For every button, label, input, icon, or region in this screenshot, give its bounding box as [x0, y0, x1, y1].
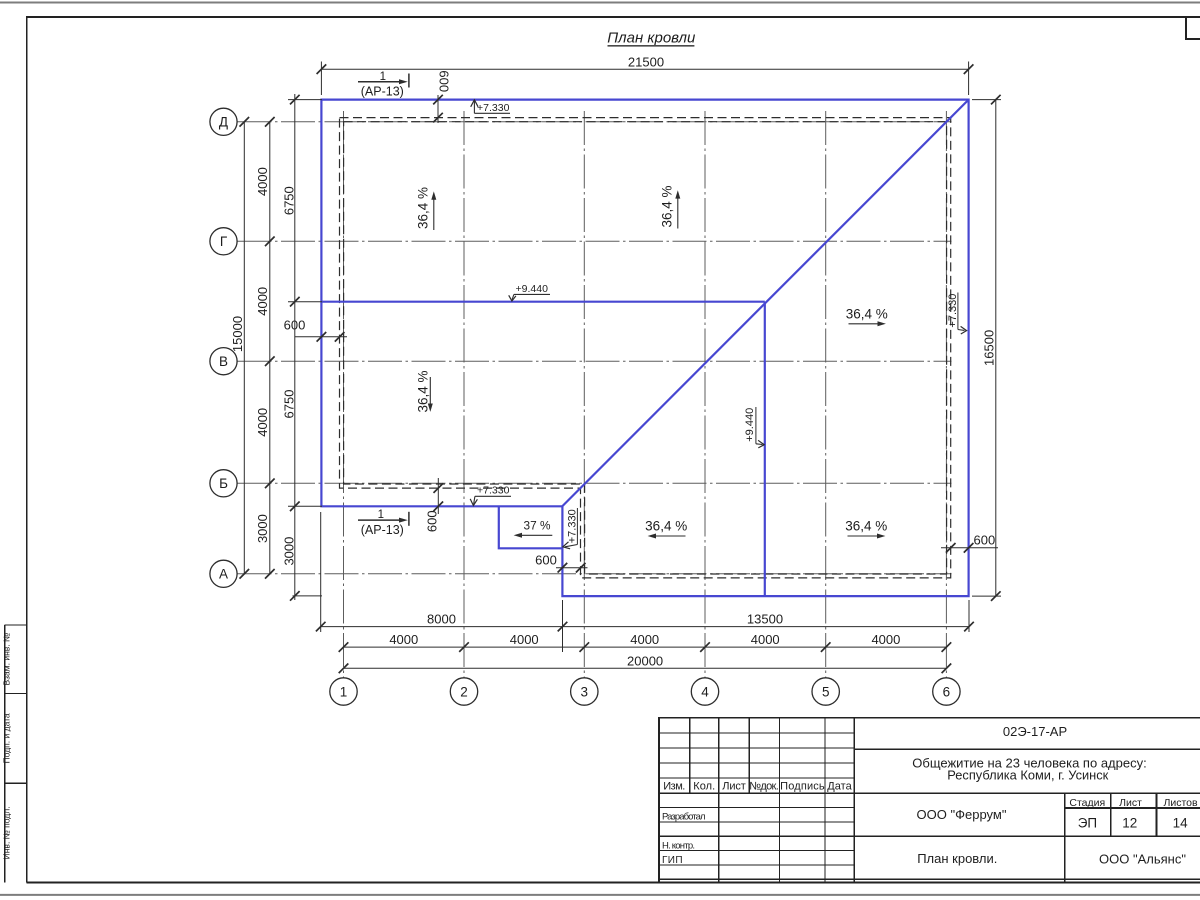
svg-text:В: В [219, 354, 228, 369]
svg-text:Подпись: Подпись [780, 781, 825, 793]
svg-text:Д: Д [219, 115, 228, 130]
svg-text:2: 2 [460, 684, 468, 699]
svg-text:Подп. и дата: Подп. и дата [2, 713, 12, 763]
svg-text:4000: 4000 [255, 287, 270, 316]
svg-text:Б: Б [219, 476, 228, 491]
svg-text:Инв. № подл.: Инв. № подл. [2, 806, 12, 859]
svg-text:Кол.: Кол. [693, 781, 715, 793]
svg-text:1: 1 [380, 71, 386, 83]
svg-text:Республика Коми, г. Усинск: Республика Коми, г. Усинск [947, 768, 1108, 783]
svg-text:1: 1 [340, 684, 348, 699]
svg-text:Стадия: Стадия [1069, 797, 1105, 809]
svg-text:Н. контр.: Н. контр. [662, 840, 695, 851]
svg-text:4000: 4000 [255, 408, 270, 437]
svg-text:13500: 13500 [747, 611, 783, 626]
svg-text:+7.330: +7.330 [477, 485, 510, 497]
svg-text:21500: 21500 [628, 55, 664, 70]
svg-text:4000: 4000 [871, 632, 900, 647]
svg-text:600: 600 [424, 510, 439, 532]
svg-text:02Э-17-АР: 02Э-17-АР [1003, 724, 1067, 739]
svg-text:4000: 4000 [751, 632, 780, 647]
svg-text:ГИП: ГИП [662, 855, 683, 866]
svg-text:16500: 16500 [982, 330, 997, 366]
svg-text:План кровли.: План кровли. [917, 851, 997, 866]
svg-text:20000: 20000 [627, 653, 663, 668]
svg-text:6: 6 [943, 684, 951, 699]
svg-text:ООО "Альянс": ООО "Альянс" [1099, 851, 1186, 866]
svg-text:6750: 6750 [282, 186, 297, 215]
svg-text:+9.440: +9.440 [744, 408, 756, 442]
svg-text:1: 1 [378, 509, 384, 521]
svg-text:План кровли: План кровли [607, 30, 696, 47]
svg-text:ЭП: ЭП [1078, 815, 1097, 830]
svg-text:12: 12 [1122, 815, 1137, 830]
svg-text:Изм.: Изм. [663, 781, 685, 793]
svg-text:600: 600 [437, 70, 452, 92]
svg-text:36,4 %: 36,4 % [846, 307, 888, 322]
svg-text:4000: 4000 [255, 167, 270, 196]
svg-text:№док.: №док. [749, 781, 779, 793]
svg-text:Г: Г [220, 234, 228, 249]
svg-text:3000: 3000 [282, 537, 297, 566]
svg-text:36,4 %: 36,4 % [645, 518, 687, 533]
svg-text:3: 3 [581, 684, 589, 699]
svg-text:4000: 4000 [389, 632, 418, 647]
svg-text:Взам. инв. №: Взам. инв. № [2, 633, 12, 686]
svg-text:36,4 %: 36,4 % [415, 370, 430, 412]
svg-text:Разработал: Разработал [662, 812, 706, 823]
svg-text:36,4 %: 36,4 % [415, 187, 430, 229]
svg-text:Лист: Лист [1119, 797, 1142, 809]
svg-text:Листов: Листов [1163, 797, 1198, 809]
svg-text:4000: 4000 [510, 632, 539, 647]
svg-text:4000: 4000 [630, 632, 659, 647]
svg-text:6750: 6750 [282, 390, 297, 419]
svg-text:(АР-13): (АР-13) [361, 523, 404, 537]
svg-text:(АР-13): (АР-13) [361, 85, 404, 99]
svg-text:14: 14 [1173, 815, 1189, 830]
svg-text:8000: 8000 [427, 611, 456, 626]
svg-text:37 %: 37 % [524, 518, 551, 532]
svg-text:+9.440: +9.440 [516, 283, 549, 295]
svg-text:36,4 %: 36,4 % [845, 518, 887, 533]
svg-text:5: 5 [822, 684, 830, 699]
svg-text:Лист: Лист [722, 781, 746, 793]
svg-text:3000: 3000 [255, 514, 270, 543]
svg-text:15000: 15000 [230, 316, 245, 352]
svg-text:600: 600 [974, 532, 996, 547]
svg-text:+7.330: +7.330 [477, 102, 510, 114]
svg-text:+7.330: +7.330 [566, 509, 578, 543]
svg-text:Дата: Дата [827, 781, 852, 793]
svg-text:+7.330: +7.330 [947, 294, 959, 328]
svg-text:ООО "Феррум": ООО "Феррум" [917, 807, 1007, 822]
svg-text:600: 600 [535, 553, 557, 568]
svg-text:4: 4 [701, 684, 709, 699]
svg-text:36,4 %: 36,4 % [659, 185, 674, 227]
svg-text:А: А [219, 567, 228, 582]
